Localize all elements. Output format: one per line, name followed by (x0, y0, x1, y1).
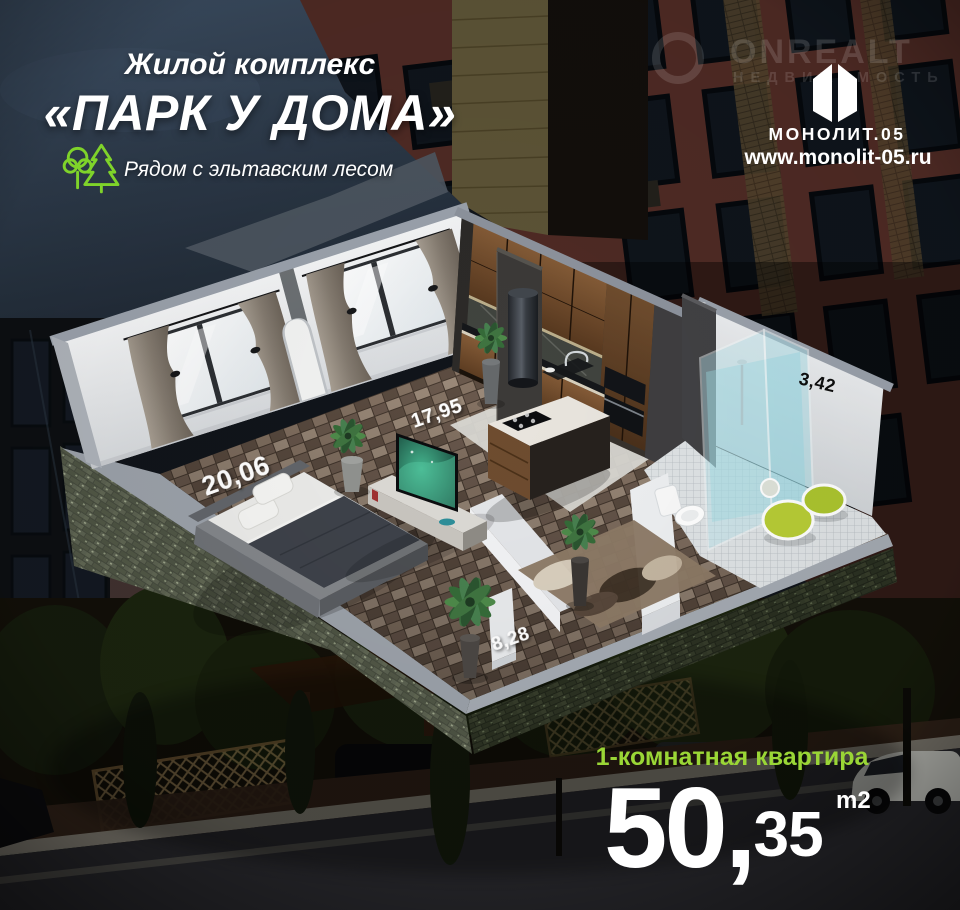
area-integer: 50 (604, 765, 725, 892)
complex-label: Жилой комплекс (30, 48, 470, 82)
tagline: Рядом с эльтавским лесом (124, 158, 393, 182)
developer-name: МОНОЛИТ.05 (762, 124, 912, 145)
trees-icon (60, 138, 120, 196)
area-comma: , (725, 765, 754, 892)
area-fraction: 35 (754, 798, 823, 870)
poster-root: 20,06 17,95 8,28 3,42 Жилой комплекс «ПА… (0, 0, 960, 910)
complex-name: «ПАРК У ДОМА» (18, 84, 482, 142)
developer-logo-icon (810, 62, 860, 124)
website-url: www.monolit-05.ru (738, 146, 938, 170)
area-unit: m2 (836, 787, 871, 815)
total-area: 50,35 (604, 772, 823, 886)
watermark-ring-icon (648, 28, 708, 88)
